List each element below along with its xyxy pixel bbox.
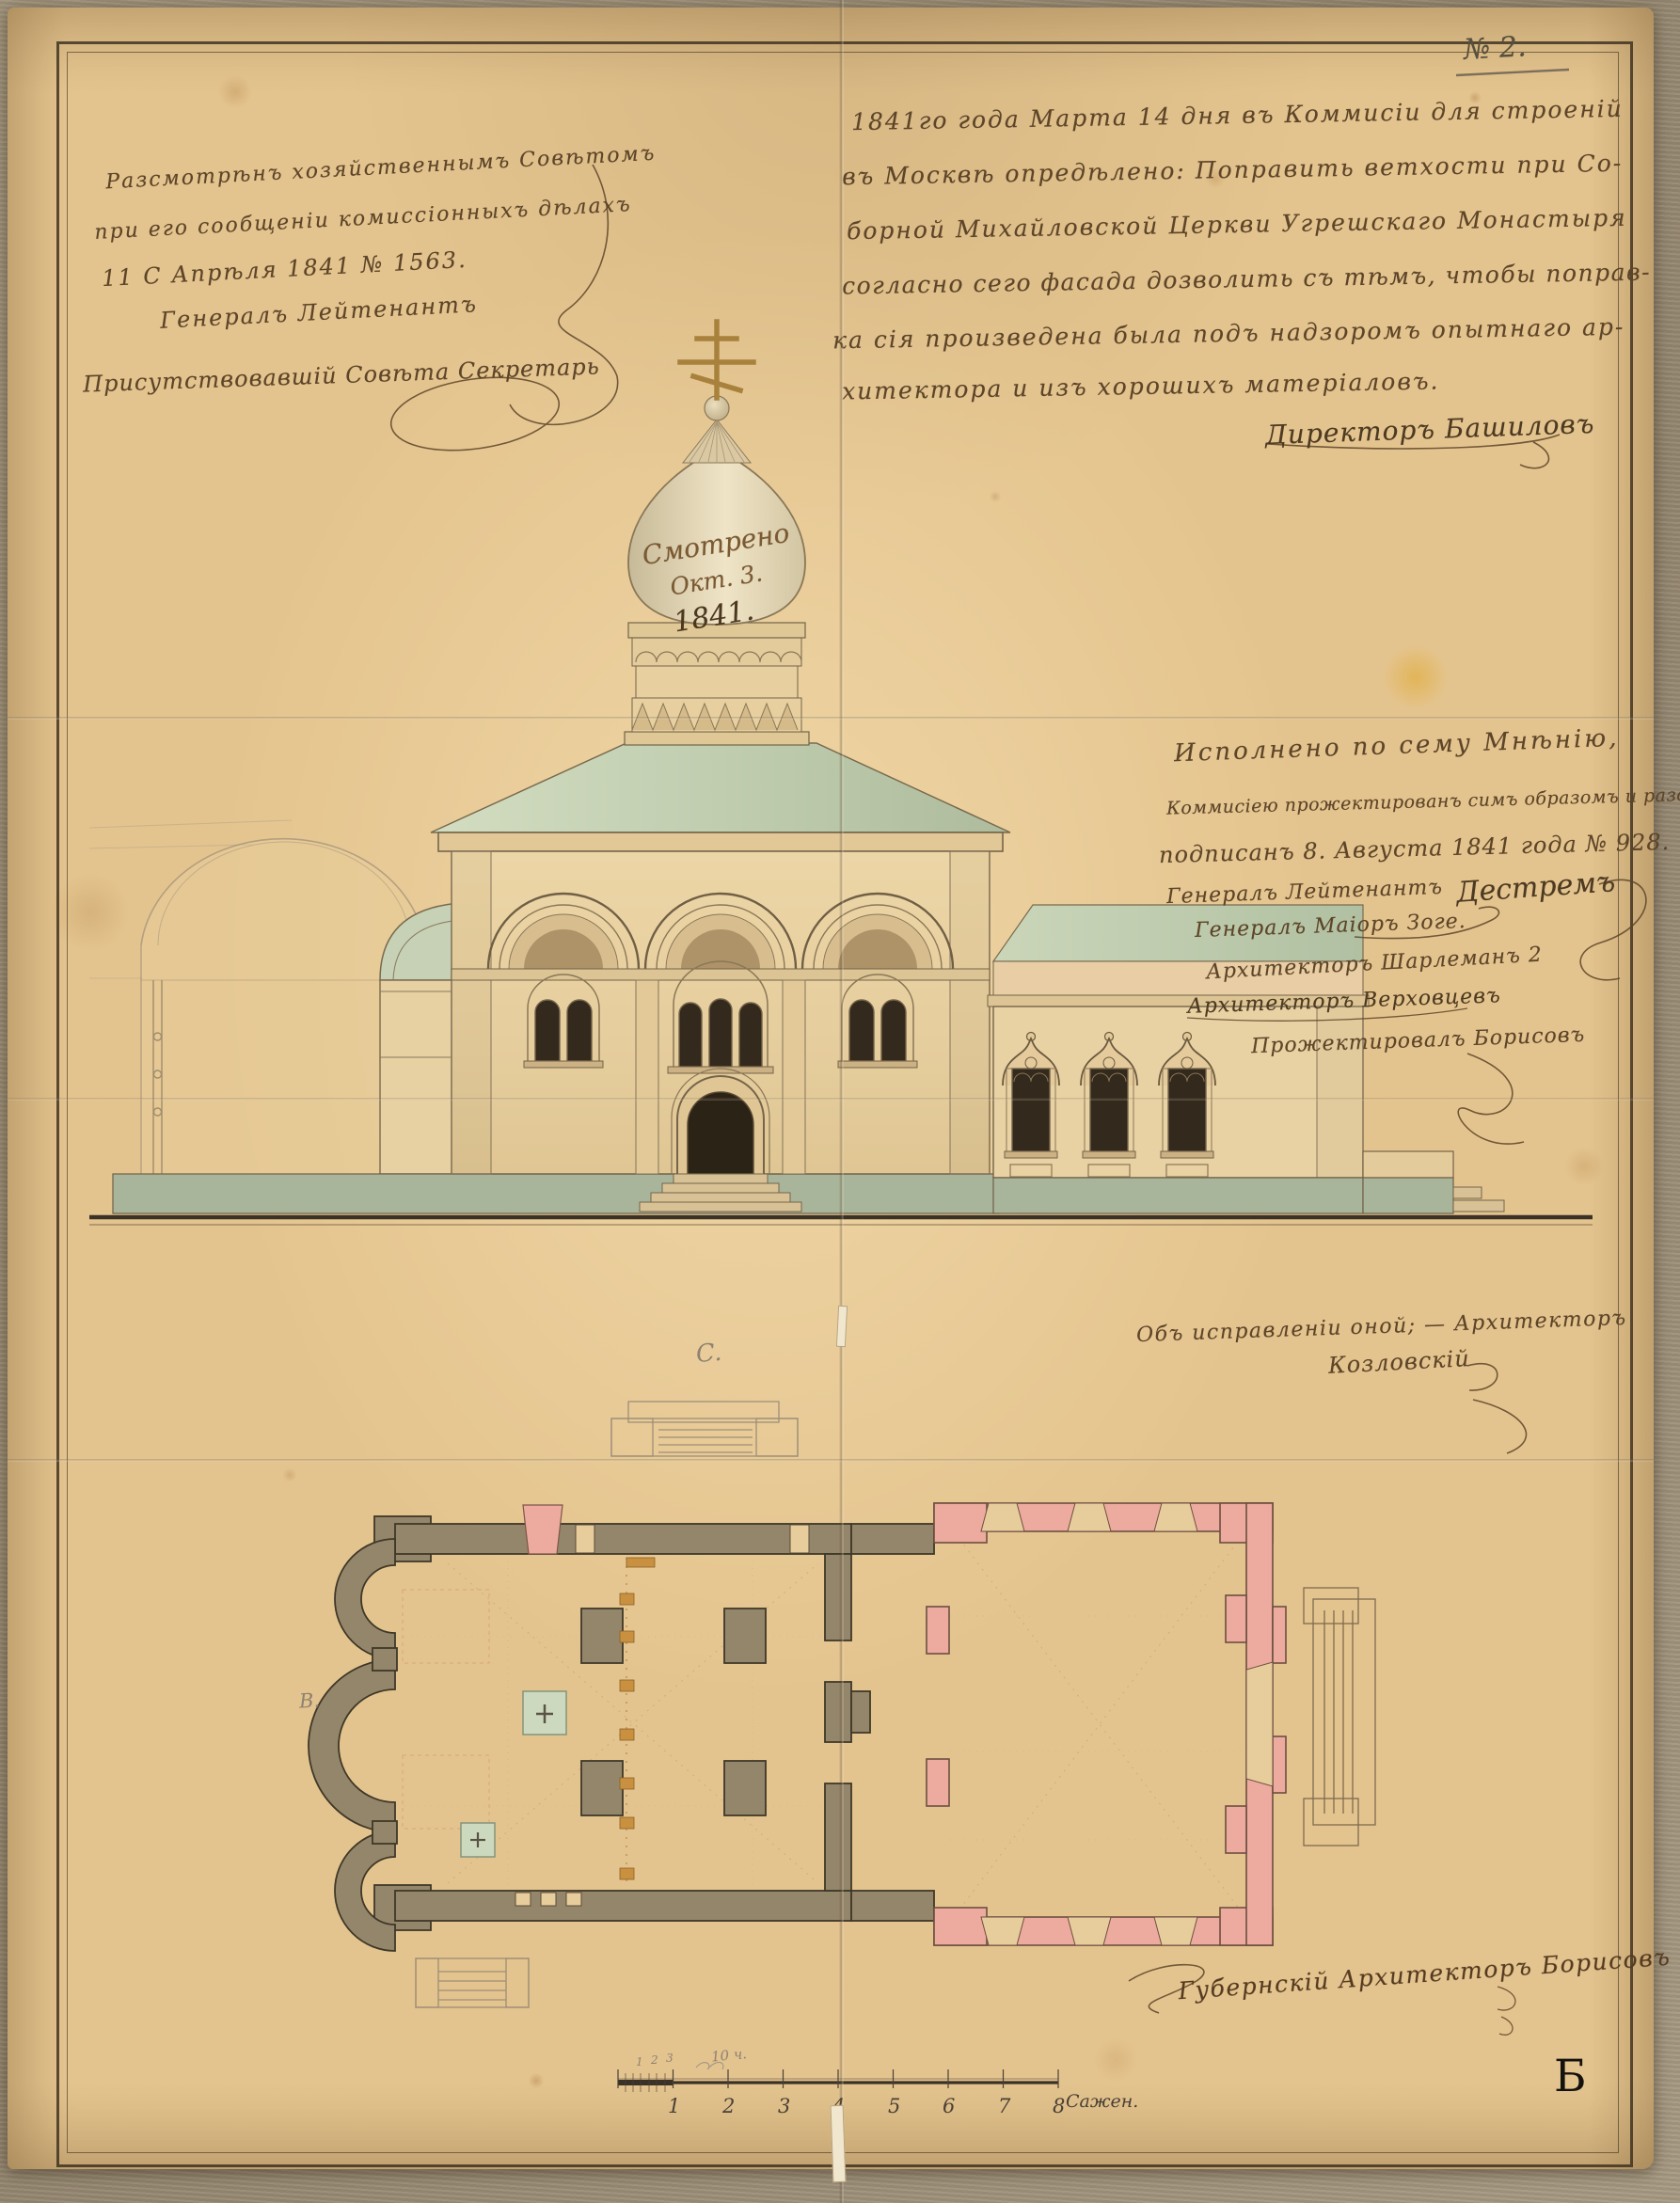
refectory-window-openings — [981, 1503, 1273, 1945]
red-pencil-guides — [403, 1590, 489, 1829]
side-chapel — [380, 903, 461, 1174]
archive-number-underline — [1456, 70, 1569, 75]
plan-signature-tail — [1498, 1987, 1515, 2035]
horizontal-fold-crease — [8, 717, 1654, 720]
plan-top-porch — [611, 1402, 798, 1456]
document-scan: 1 2 3 4 5 6 7 8 1 2 3 Сажен. — [0, 0, 1680, 2203]
plinth — [113, 1174, 999, 1213]
pencil-mark-scale: 10 ч. — [710, 2045, 747, 2065]
main-cube — [438, 832, 1003, 1212]
facade-signature-flourish — [1467, 1364, 1527, 1453]
scale-unit-label: Сажен. — [1066, 2091, 1138, 2112]
scale-number: 1 — [668, 2095, 680, 2117]
vertical-fold-crease — [839, 0, 844, 2203]
scale-number: 6 — [943, 2095, 955, 2117]
plan-entrance-steps — [1304, 1588, 1375, 1846]
horizontal-fold-crease — [8, 1098, 1654, 1101]
kokoshnik-windows — [1003, 1033, 1215, 1178]
scale-number: 7 — [998, 2095, 1011, 2117]
dome-drum — [625, 623, 809, 745]
hipped-roof — [431, 743, 1010, 832]
horizontal-fold-crease — [8, 1459, 1654, 1462]
altar-squares — [461, 1691, 566, 1857]
scale-subdivision: 2 — [650, 2053, 658, 2067]
blind-arches — [488, 894, 953, 969]
scale-subdivision: 1 — [636, 2055, 643, 2068]
scale-bar: 1 2 3 4 5 6 7 8 1 2 3 Сажен. — [618, 2052, 1138, 2117]
pencil-mark-plan-left: В. — [298, 1688, 320, 1712]
archive-number: № 2. — [1463, 30, 1527, 66]
paper-tear — [831, 2105, 847, 2182]
plate-letter: Б — [1554, 2051, 1587, 2102]
plan-bottom-porch — [416, 1958, 529, 2007]
orthodox-cross — [680, 322, 753, 398]
pencil-mark-plan-top: C. — [695, 1339, 723, 1369]
repair-patch-pink — [523, 1505, 563, 1554]
scale-number: 2 — [721, 2095, 735, 2117]
scale-number: 3 — [778, 2095, 790, 2117]
scale-number: 5 — [888, 2095, 900, 2117]
scale-number: 8 — [1053, 2095, 1065, 2117]
refectory-plan-walls — [927, 1503, 1286, 1945]
scale-numbers: 1 2 3 4 5 6 7 8 — [668, 2095, 1065, 2117]
scale-subdivision-numbers: 1 2 3 — [636, 2052, 674, 2068]
iconostasis-line — [620, 1558, 655, 1887]
scale-subdivision: 3 — [666, 2052, 674, 2065]
